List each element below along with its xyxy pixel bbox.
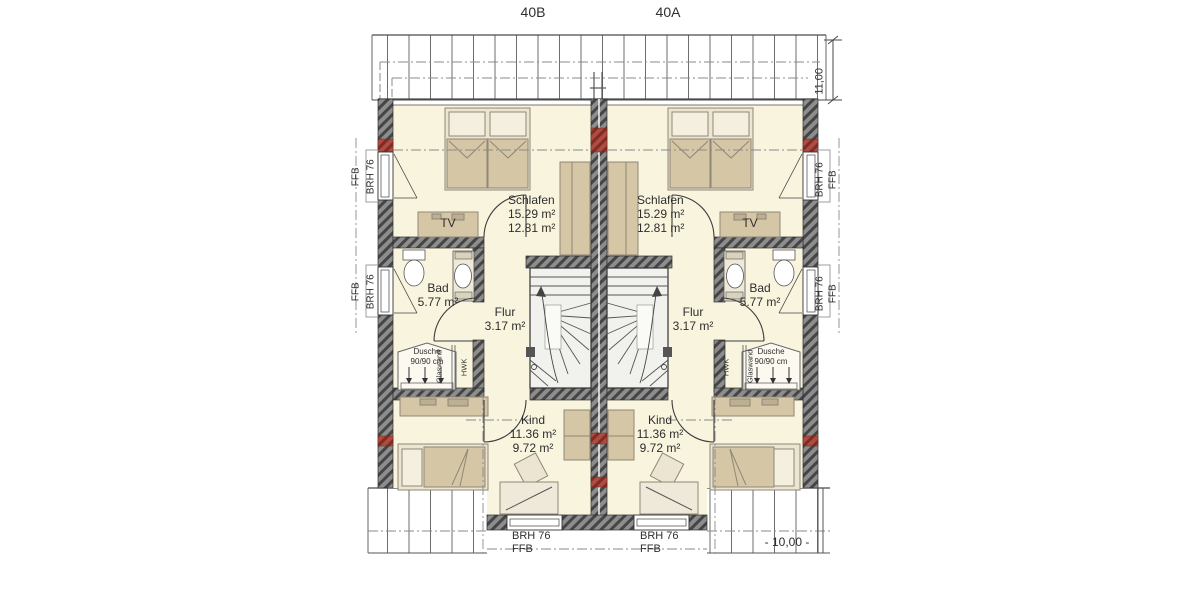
dimension-line-right: [824, 36, 842, 104]
glaswand-label-right: Glaswand: [747, 343, 756, 389]
stairs-right-unit: [607, 268, 672, 388]
schlafen-right-area1: 15.29 m²: [637, 207, 684, 221]
room-label-schlafen-right: Schlafen 15.29 m² 12.81 m²: [637, 193, 684, 235]
stairs-left-unit: [526, 268, 591, 388]
brh-label-left-2: BRH 76: [365, 269, 377, 315]
ffb-label-left-1: FFB: [350, 159, 362, 195]
unit-left-title: 40B: [503, 4, 563, 20]
flur-right-name: Flur: [665, 305, 721, 319]
room-label-flur-right: Flur 3.17 m²: [665, 305, 721, 333]
dusche-left-line1: Dusche: [398, 347, 456, 357]
floorplan-page: 40B 40A 11,00 - 10,00 - FFB BRH 76 FFB B…: [0, 0, 1200, 600]
bad-left-area: 5.77 m²: [407, 295, 469, 309]
glaswand-label-left: Glaswand: [436, 343, 445, 389]
room-label-flur-left: Flur 3.17 m²: [477, 305, 533, 333]
brh-label-bottom-right: BRH 76: [640, 530, 679, 543]
room-label-kind-left: Kind 11.36 m² 9.72 m²: [500, 413, 566, 455]
kind-left-area1: 11.36 m²: [500, 427, 566, 441]
ffb-label-right-1: FFB: [827, 162, 839, 198]
brh-label-left-1: BRH 76: [365, 154, 377, 200]
bad-left-name: Bad: [407, 281, 469, 295]
room-label-schlafen-left: Schlafen 15.29 m² 12.81 m²: [508, 193, 555, 235]
floorplan-drawing: [0, 0, 1200, 600]
dusche-label-left: Dusche 90/90 cm: [398, 347, 456, 366]
room-label-bad-right: Bad 5.77 m²: [729, 281, 791, 309]
brh-label-right-2: BRH 76: [814, 271, 826, 317]
kind-right-name: Kind: [627, 413, 693, 427]
flur-left-name: Flur: [477, 305, 533, 319]
roof-band-top: [372, 35, 826, 100]
kind-left-name: Kind: [500, 413, 566, 427]
ffb-label-bottom-left: FFB: [512, 543, 533, 556]
flur-right-area: 3.17 m²: [665, 319, 721, 333]
room-label-bad-left: Bad 5.77 m²: [407, 281, 469, 309]
ffb-label-left-2: FFB: [350, 274, 362, 310]
schlafen-right-area2: 12.81 m²: [637, 221, 684, 235]
kind-left-area2: 9.72 m²: [500, 441, 566, 455]
bad-right-area: 5.77 m²: [729, 295, 791, 309]
kind-right-area1: 11.36 m²: [627, 427, 693, 441]
unit-right-title: 40A: [638, 4, 698, 20]
roof-band-bottom-left: [368, 488, 487, 553]
ffb-label-bottom-right: FFB: [640, 543, 661, 556]
bad-right-name: Bad: [729, 281, 791, 295]
level-minus10-label: - 10,00 -: [752, 536, 822, 550]
flur-left-area: 3.17 m²: [477, 319, 533, 333]
schlafen-left-area1: 15.29 m²: [508, 207, 555, 221]
kind-right-area2: 9.72 m²: [627, 441, 693, 455]
brh-label-bottom-left: BRH 76: [512, 530, 551, 543]
tv-label-left: TV: [428, 217, 468, 231]
schlafen-left-name: Schlafen: [508, 193, 555, 207]
dusche-left-line2: 90/90 cm: [398, 357, 456, 367]
ffb-label-right-2: FFB: [827, 276, 839, 312]
schlafen-left-area2: 12.81 m²: [508, 221, 555, 235]
tv-label-right: TV: [730, 217, 770, 231]
hwk-label-left: HWK: [461, 352, 470, 382]
brh-label-right-1: BRH 76: [814, 157, 826, 203]
schlafen-right-name: Schlafen: [637, 193, 684, 207]
hwk-label-right: HWK: [723, 352, 732, 382]
room-label-kind-right: Kind 11.36 m² 9.72 m²: [627, 413, 693, 455]
dimension-11-label: 11,00: [814, 59, 827, 103]
